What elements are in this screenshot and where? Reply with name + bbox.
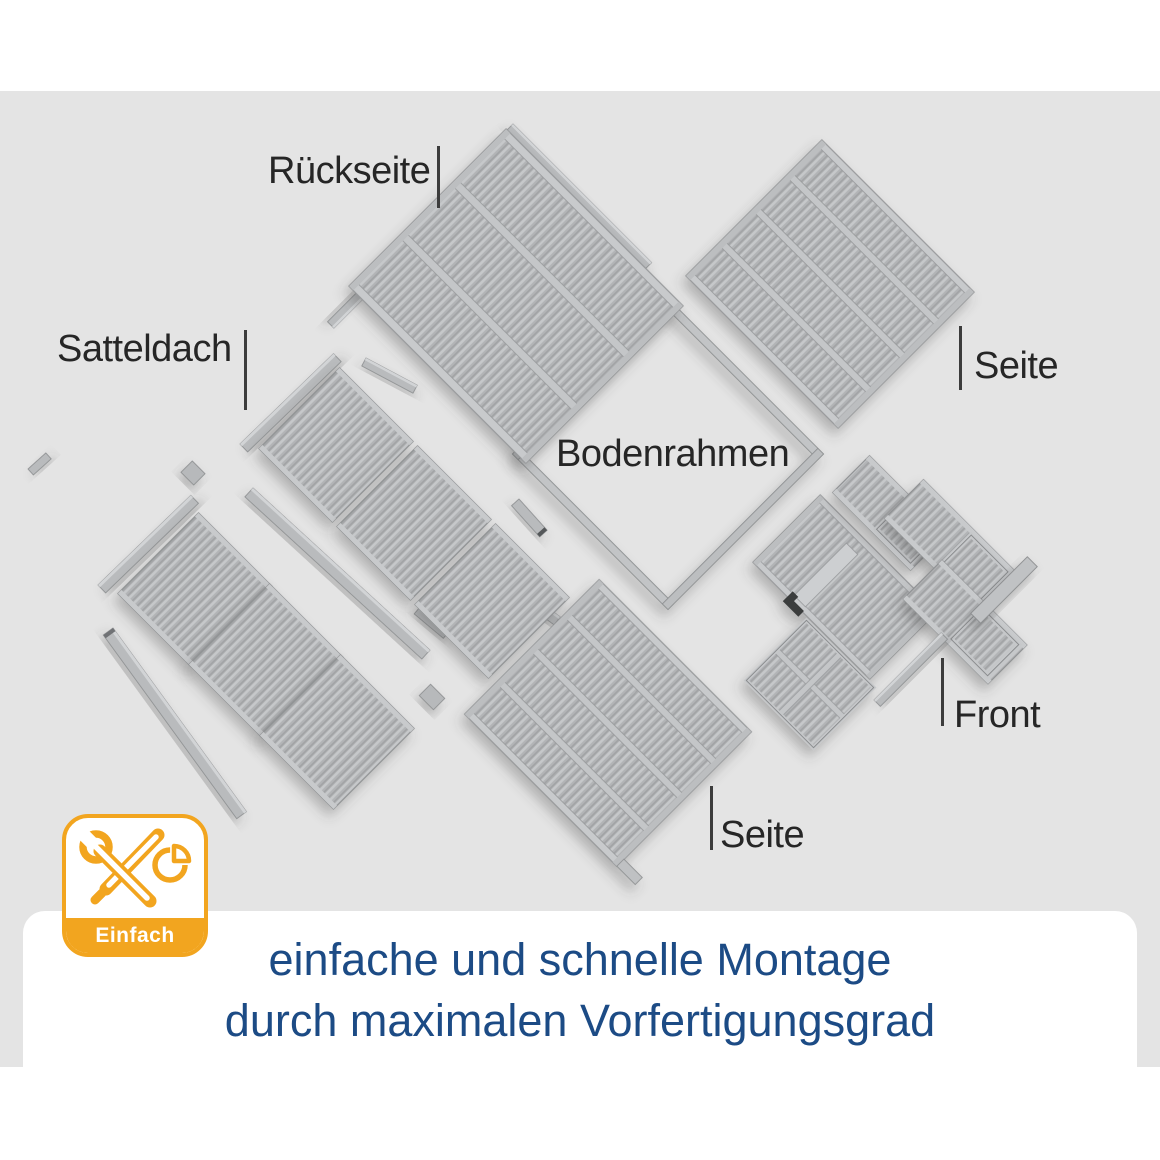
label-front: Front: [954, 694, 1040, 737]
product-diagram: Rückseite Satteldach Seite Bodenrahmen F…: [0, 0, 1160, 1160]
label-bodenrahmen: Bodenrahmen: [556, 433, 789, 476]
label-satteldach: Satteldach: [57, 328, 232, 371]
caption-line-1: einfache und schnelle Montage: [23, 929, 1137, 990]
pie-chart-icon: [155, 846, 189, 880]
label-seite-bottom-line: [710, 786, 713, 850]
part-seite-right: [686, 140, 974, 428]
label-rueckseite-line: [437, 146, 440, 208]
label-satteldach-line: [244, 330, 247, 410]
label-rueckseite: Rückseite: [268, 150, 430, 193]
caption-text: einfache und schnelle Montage durch maxi…: [23, 929, 1137, 1051]
label-front-line: [941, 658, 944, 726]
label-seite-right-line: [959, 326, 962, 390]
caption-line-2: durch maximalen Vorfertigungsgrad: [23, 990, 1137, 1051]
label-seite-bottom: Seite: [720, 814, 804, 857]
label-seite-right: Seite: [974, 345, 1058, 388]
wrench-and-screwdriver-icon: [66, 821, 203, 921]
